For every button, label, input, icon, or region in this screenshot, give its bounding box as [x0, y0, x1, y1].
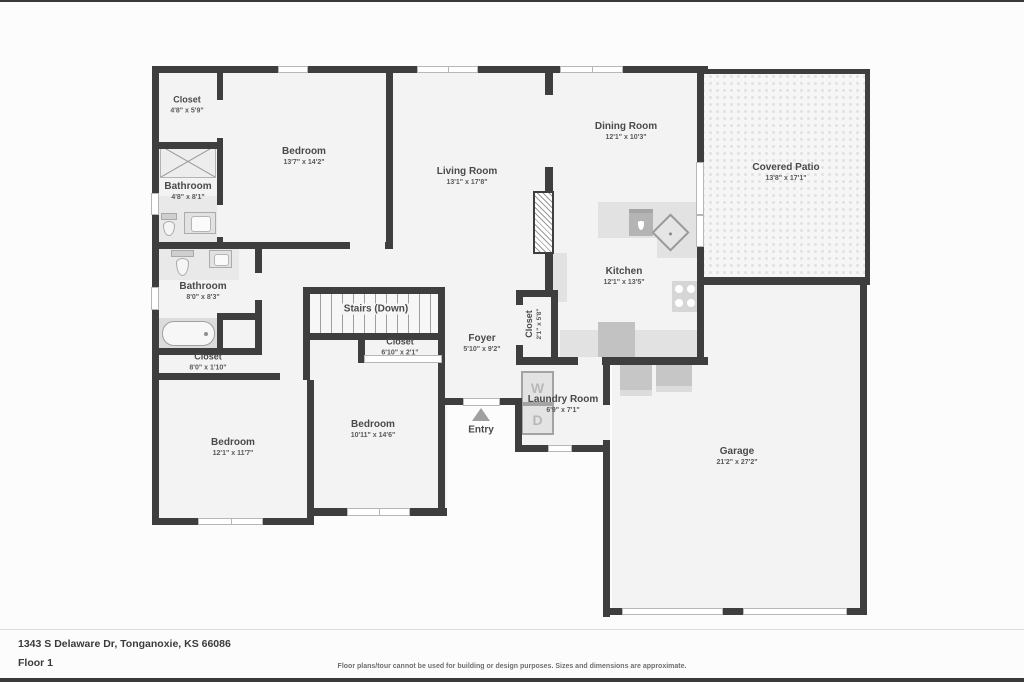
garage-door [622, 608, 723, 615]
garage-step [656, 365, 692, 386]
window [417, 66, 478, 73]
dishwasher [598, 322, 635, 357]
wall [603, 440, 610, 617]
garage-door [743, 608, 847, 615]
wall [217, 313, 223, 355]
wall [217, 138, 223, 205]
floor-indicator: Floor 1 [18, 657, 53, 669]
room-label-bedroom-closet: Closet6'10" x 2'1" [381, 337, 418, 358]
window [198, 518, 263, 525]
room-label-foyer: Foyer5'10" x 9'2" [463, 332, 500, 354]
wall [303, 287, 445, 294]
wall [516, 290, 558, 297]
page-bottom-border [0, 678, 1024, 682]
room-label-bedroom-bl: Bedroom12'1" x 11'7" [211, 436, 255, 458]
room-label-closet-tl: Closet4'8" x 5'9" [170, 95, 203, 116]
wall [217, 313, 262, 320]
room-label-dining-room: Dining Room12'1" x 10'3" [595, 120, 657, 142]
entry-door [463, 398, 500, 406]
wall [440, 398, 463, 405]
wall [700, 69, 870, 74]
room-floor [704, 285, 862, 365]
wall [860, 285, 867, 615]
garage-step [620, 365, 652, 390]
wall [152, 142, 223, 149]
room-label-bedroom-mid: Bedroom10'11" x 14'6" [351, 418, 396, 440]
wall [303, 333, 445, 340]
garage-step-edge [656, 386, 692, 392]
stairs-label: Stairs (Down) [340, 304, 412, 315]
wall [307, 380, 314, 525]
water-drop-icon [638, 221, 644, 230]
wall [516, 297, 523, 305]
property-address: 1343 S Delaware Dr, Tonganoxie, KS 66086 [18, 638, 231, 650]
room-label-bathroom-1: Bathroom4'8" x 8'1" [164, 180, 211, 202]
wall [700, 277, 870, 285]
toilet-tank-icon [171, 250, 194, 257]
bathroom1-sink-icon [184, 212, 216, 234]
window [151, 193, 159, 215]
wall [386, 66, 393, 248]
room-label-covered-patio: Covered Patio13'8" x 17'1" [752, 161, 819, 183]
window [548, 445, 572, 452]
wall [152, 242, 350, 249]
disclaimer-text: Floor plans/tour cannot be used for buil… [338, 663, 687, 670]
floor-plan-page: W D [0, 0, 1024, 682]
room-floor [612, 362, 862, 615]
wall [516, 357, 578, 365]
wall [515, 398, 522, 452]
garage-step-edge [620, 390, 652, 396]
window [347, 508, 410, 516]
room-label-living-room: Living Room13'1" x 17'8" [437, 165, 498, 187]
wall [255, 300, 262, 355]
room-label-bedroom-tl: Bedroom13'7" x 14'2" [282, 145, 326, 167]
page-top-border [0, 0, 1024, 2]
footer-divider [0, 629, 1024, 630]
room-label-hall-closet: Closet8'0" x 1'10" [189, 352, 226, 373]
refrigerator-icon [629, 209, 653, 236]
wall [217, 237, 223, 249]
room-label-garage: Garage21'2" x 27'2" [716, 445, 757, 467]
wall [551, 297, 558, 357]
fireplace [533, 191, 554, 254]
window [278, 66, 308, 73]
shower-icon [160, 145, 216, 178]
wall [603, 362, 610, 405]
room-label-entry-closet: Closet2'1" x 5'8" [524, 309, 544, 340]
wall [217, 66, 223, 100]
room-label-bathroom-2: Bathroom8'0" x 8'3" [179, 280, 226, 302]
wall [545, 66, 553, 95]
room-label-kitchen: Kitchen12'1" x 13'5" [603, 265, 644, 287]
bathtub-icon [162, 321, 215, 346]
wall [152, 373, 280, 380]
wall [545, 167, 553, 193]
wall [602, 357, 708, 365]
wall [865, 69, 870, 282]
entry-direction-icon [472, 408, 490, 421]
window [696, 215, 704, 247]
toilet-tank-icon [161, 213, 177, 220]
stove-icon [672, 281, 698, 312]
window [151, 287, 159, 310]
room-label-laundry-room: Laundry Room6'9" x 7'1" [528, 393, 599, 415]
window [696, 162, 704, 215]
bathroom2-sink-icon [209, 250, 232, 268]
entry-label: Entry [468, 424, 494, 437]
window [560, 66, 623, 73]
